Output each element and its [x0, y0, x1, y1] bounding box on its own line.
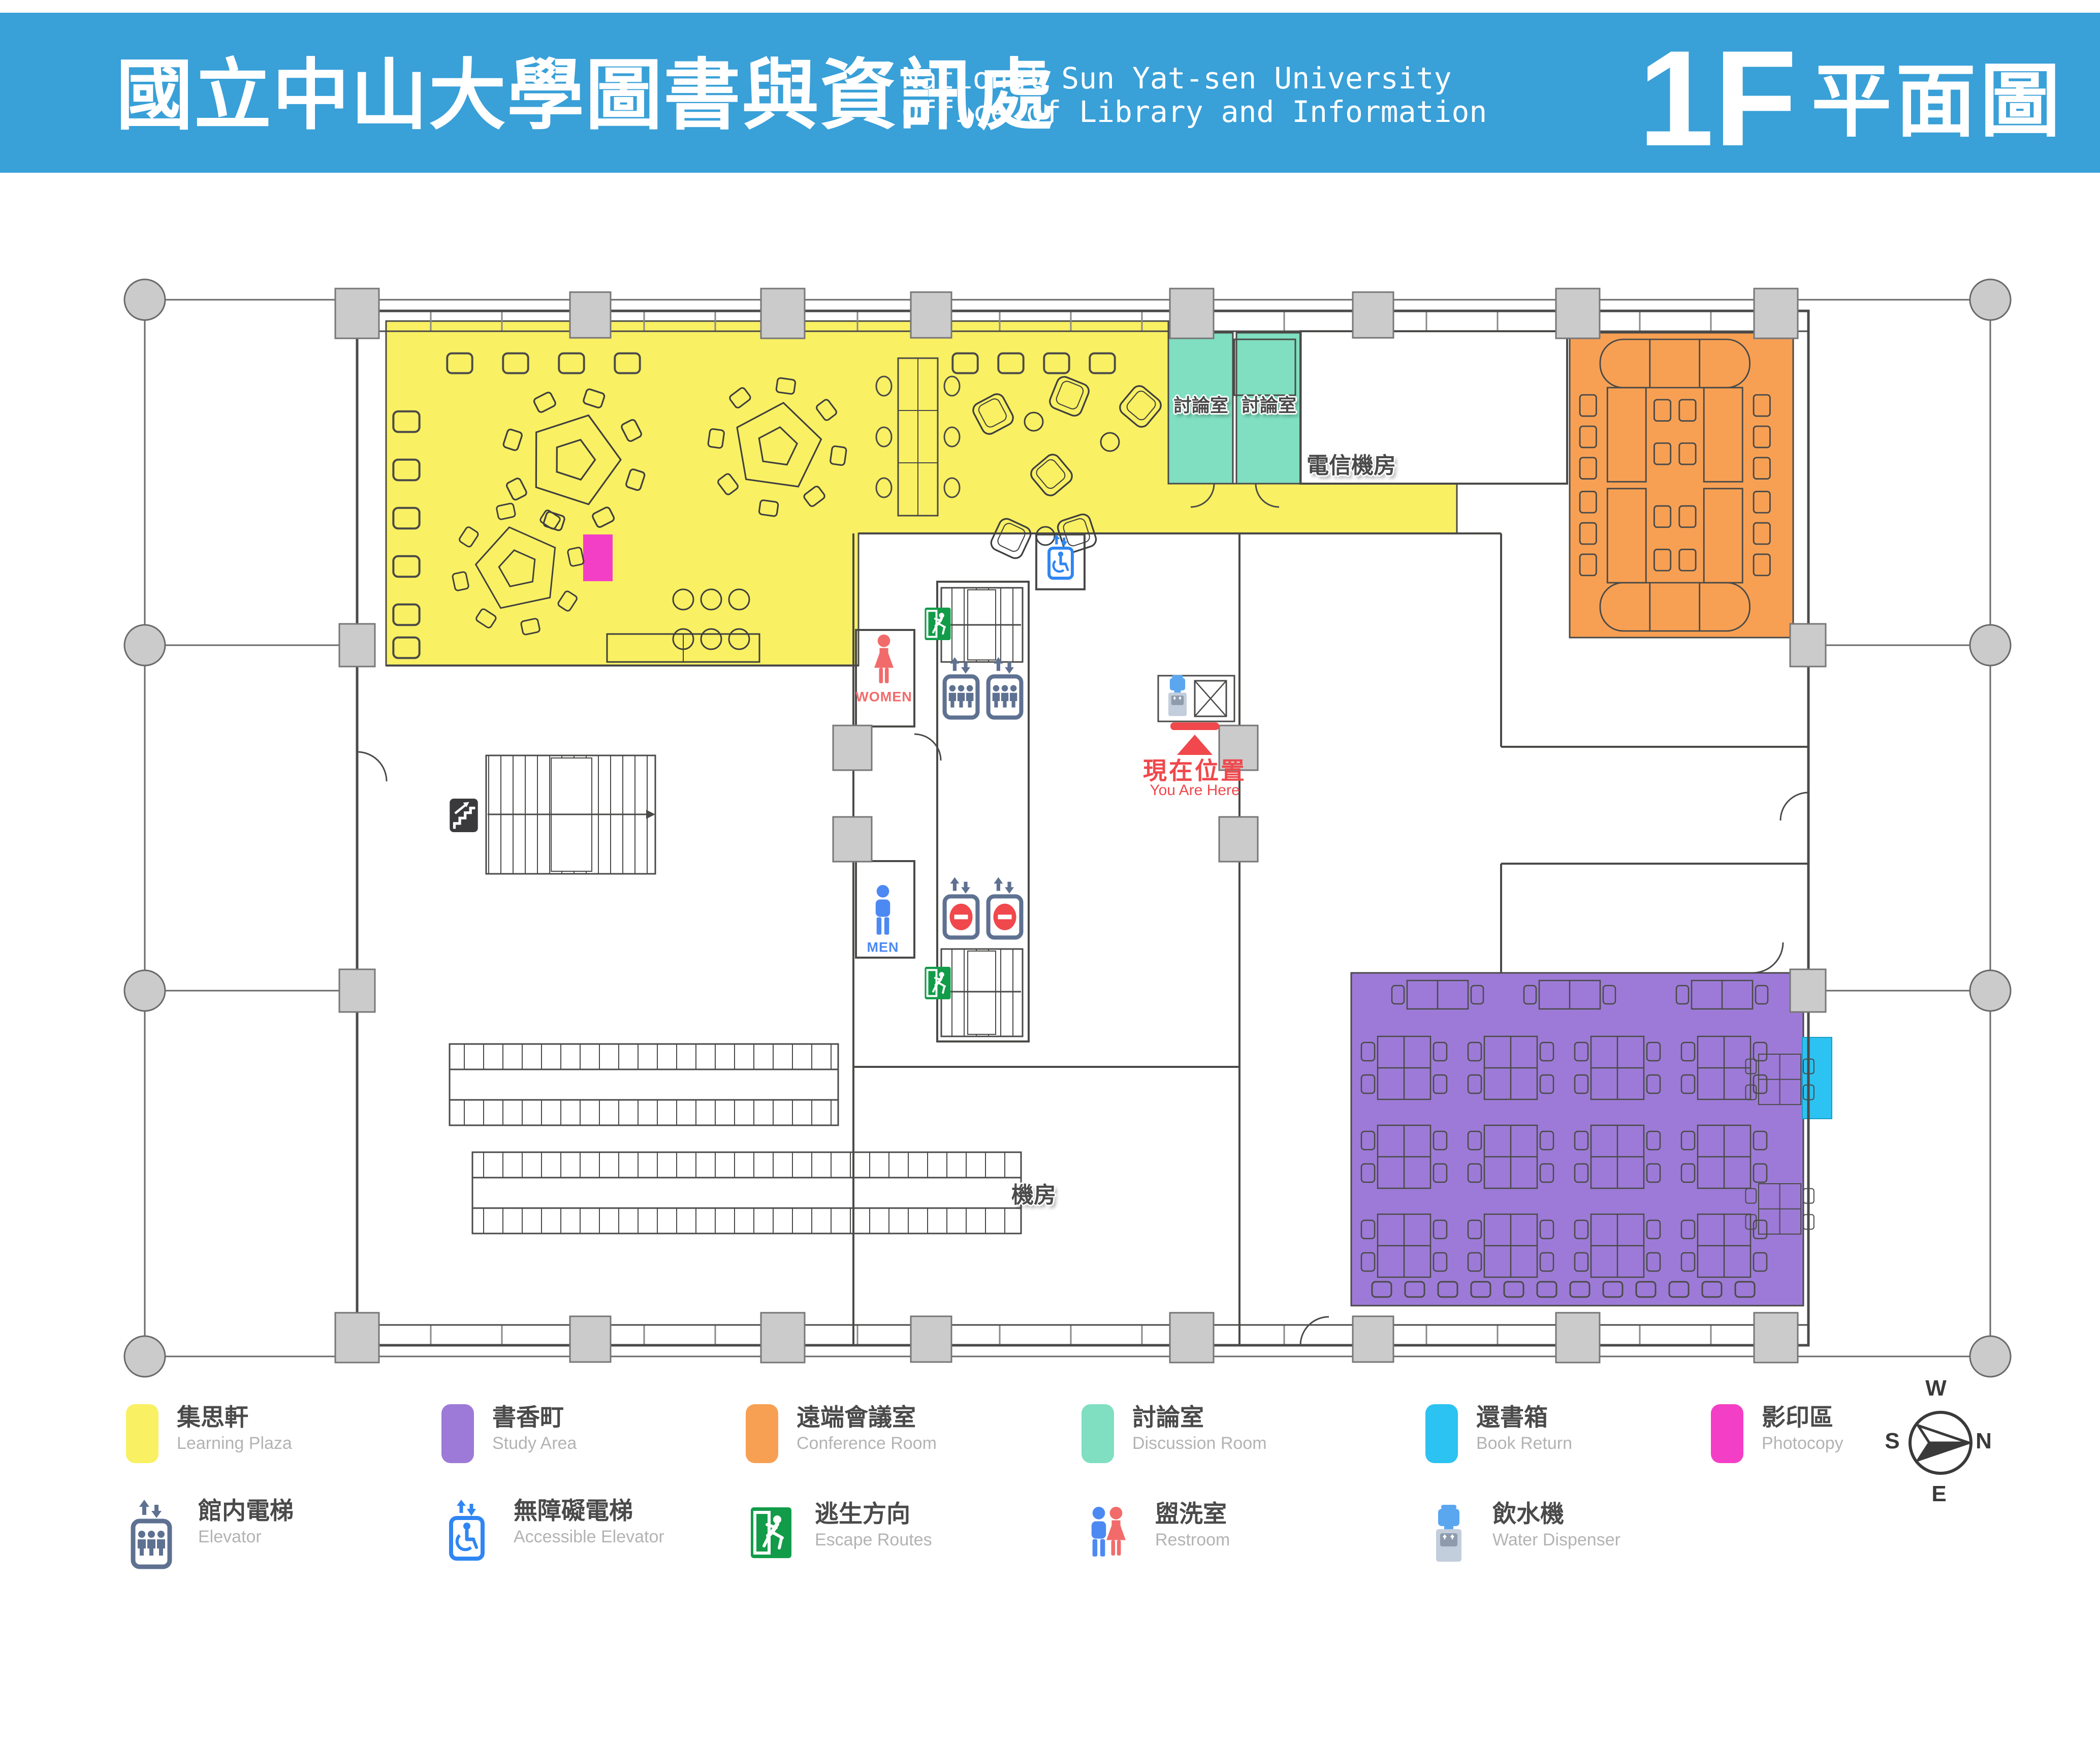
men-restroom-label: MEN — [867, 940, 899, 956]
discussion-room-swatch — [1080, 1403, 1115, 1464]
water-dispenser-icon — [1422, 1500, 1475, 1566]
book-return-swatch — [1424, 1403, 1459, 1464]
conference-room-region — [1570, 333, 1793, 638]
woman-icon-plan — [874, 635, 894, 683]
legend-label-en: Study Area — [492, 1432, 577, 1455]
legend-label-en: Escape Routes — [815, 1528, 932, 1552]
elevator-blocked-icon-left — [945, 877, 978, 938]
legend-label-zh: 逃生方向 — [815, 1500, 932, 1528]
legend-item-water-dispenser: 飲水機 Water Dispenser — [1422, 1500, 1620, 1566]
legend-label-en: Learning Plaza — [177, 1432, 292, 1455]
legend-label-zh: 影印區 — [1762, 1403, 1843, 1432]
learning-plaza-swatch — [125, 1403, 160, 1464]
compass-e: E — [1931, 1481, 1946, 1507]
legend-item-accessible-elevator: 無障礙電梯 Accessible Elevator — [437, 1497, 664, 1571]
elevator-icon — [122, 1497, 181, 1571]
machine-room-label: 機房 — [1011, 1177, 1056, 1209]
legend-label-en: Water Dispenser — [1492, 1528, 1620, 1552]
legend-label-zh: 飲水機 — [1492, 1500, 1620, 1528]
shelving-bank-lower — [472, 1152, 1021, 1233]
legend-item-learning-plaza: 集思軒 Learning Plaza — [125, 1403, 292, 1464]
staircase-core-lower — [941, 949, 1023, 1036]
legend-item-elevator: 館内電梯 Elevator — [122, 1497, 294, 1571]
legend-item-restroom: 盥洗室 Restroom — [1077, 1500, 1230, 1566]
legend-label-zh: 遠端會議室 — [797, 1403, 937, 1432]
discussion-room-2-label: 討論室 — [1242, 391, 1296, 417]
compass-w: W — [1925, 1376, 1947, 1401]
water-dispenser-icon-plan — [1168, 675, 1187, 716]
legend-label-en: Restroom — [1155, 1528, 1230, 1552]
legend-label-en: Conference Room — [797, 1432, 937, 1455]
elevator-icon-left — [945, 657, 978, 718]
women-restroom-label: WOMEN — [855, 689, 912, 705]
legend-label-en: Elevator — [198, 1525, 294, 1548]
elevator-blocked-icon-right — [989, 877, 1022, 938]
escape-route-icon-lower — [925, 967, 950, 999]
study-area-region — [1351, 973, 1803, 1306]
floor-plan-svg — [0, 0, 2100, 1740]
staircase-main — [486, 755, 655, 874]
legend-item-conference-room: 遠端會議室 Conference Room — [745, 1403, 937, 1464]
restroom-icon — [1077, 1500, 1138, 1566]
escape-route-icon-upper — [925, 608, 950, 640]
legend-label-en: Discussion Room — [1132, 1432, 1267, 1455]
staircase-core-upper — [941, 588, 1023, 662]
accessible-elevator-icon — [437, 1497, 496, 1571]
legend-item-discussion-room: 討論室 Discussion Room — [1080, 1403, 1267, 1464]
floor-plan-page: 國立中山大學圖書與資訊處 National Sun Yat-sen Univer… — [0, 0, 2100, 1740]
compass-s: S — [1885, 1429, 1899, 1454]
legend-item-escape-routes: 逃生方向 Escape Routes — [745, 1500, 932, 1566]
stairs-icon — [450, 799, 478, 832]
legend-label-zh: 館内電梯 — [198, 1497, 294, 1525]
photocopy-region — [583, 534, 613, 581]
legend-label-zh: 討論室 — [1132, 1403, 1267, 1432]
legend-label-zh: 盥洗室 — [1155, 1500, 1230, 1528]
legend-label-zh: 還書箱 — [1476, 1403, 1572, 1432]
shelving-bank-upper — [450, 1044, 838, 1125]
legend-item-study-area: 書香町 Study Area — [440, 1403, 577, 1464]
legend-label-zh: 集思軒 — [177, 1403, 292, 1432]
conference-room-swatch — [745, 1403, 779, 1464]
compass: W N E S — [1892, 1395, 1989, 1491]
study-area-swatch — [440, 1403, 475, 1464]
legend-label-en: Book Return — [1476, 1432, 1572, 1455]
book-return-region — [1802, 1037, 1832, 1119]
discussion-room-1-label: 討論室 — [1173, 391, 1228, 417]
legend-label-zh: 書香町 — [492, 1403, 577, 1432]
you-are-here-label-en: You Are Here — [1150, 782, 1239, 799]
escape-route-icon — [745, 1500, 798, 1566]
legend-item-book-return: 還書箱 Book Return — [1424, 1403, 1572, 1464]
photocopy-swatch — [1710, 1403, 1744, 1464]
you-are-here-label-zh: 現在位置 — [1143, 751, 1247, 786]
man-icon-plan — [876, 885, 890, 935]
compass-rose-icon — [1892, 1395, 1989, 1491]
legend-label-en: Accessible Elevator — [514, 1525, 664, 1548]
elevator-icon-right — [989, 657, 1022, 718]
compass-n: N — [1976, 1429, 1992, 1454]
telecom-room-label: 電信機房 — [1307, 447, 1396, 480]
legend-item-photocopy: 影印區 Photocopy — [1710, 1403, 1843, 1464]
legend-label-en: Photocopy — [1762, 1432, 1843, 1455]
legend-label-zh: 無障礙電梯 — [514, 1497, 664, 1525]
you-are-here-icon — [1170, 722, 1219, 755]
